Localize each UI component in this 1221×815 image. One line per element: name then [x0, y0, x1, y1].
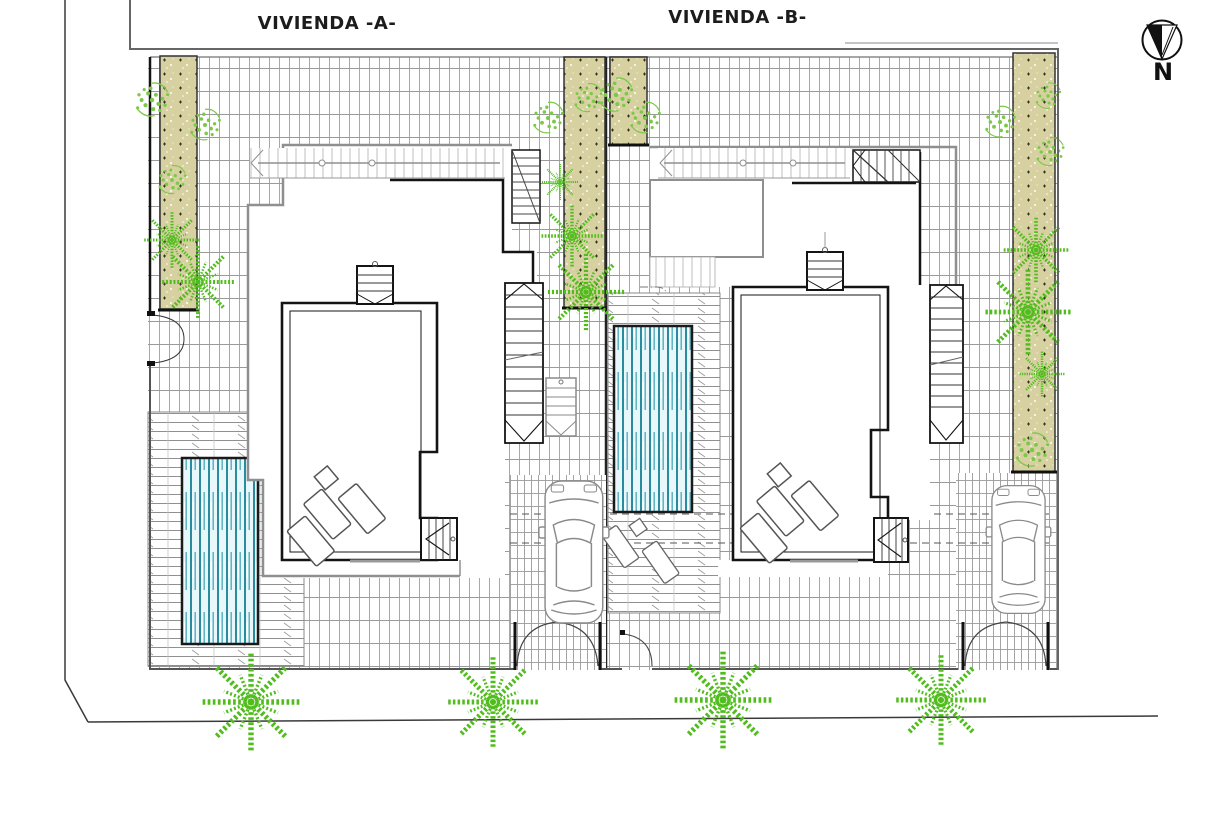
villa-a-title: VIVIENDA -A- — [252, 13, 402, 34]
villa-b-title: VIVIENDA -B- — [660, 7, 815, 28]
porch-joists-villa-b — [640, 257, 715, 292]
stair-landing-villa-a — [546, 378, 576, 436]
stair-terrace-villa-a — [421, 518, 457, 560]
pergola-villa-b — [658, 148, 850, 178]
swimming-pool-villa-b — [614, 326, 692, 512]
stair-upper-villa-a — [512, 150, 540, 223]
stair-side-villa-a — [505, 283, 543, 443]
left-wing-villa-b — [650, 180, 763, 257]
north-label: N — [1148, 58, 1178, 86]
boundary-left — [65, 0, 88, 722]
car-villa-a — [539, 481, 609, 623]
site-plan-canvas: VIVIENDA -A- VIVIENDA -B- N — [0, 0, 1221, 815]
stair-upper-villa-b — [853, 150, 920, 182]
stair-side-villa-b — [930, 285, 963, 443]
pergola-villa-a — [250, 148, 505, 178]
car-villa-b — [986, 486, 1051, 614]
stair-terrace-villa-b — [874, 518, 908, 562]
stair-entry-villa-a — [357, 262, 393, 305]
north-arrow-icon — [1143, 21, 1182, 60]
swimming-pool-villa-a — [182, 458, 258, 644]
site-plan-svg — [0, 0, 1221, 815]
